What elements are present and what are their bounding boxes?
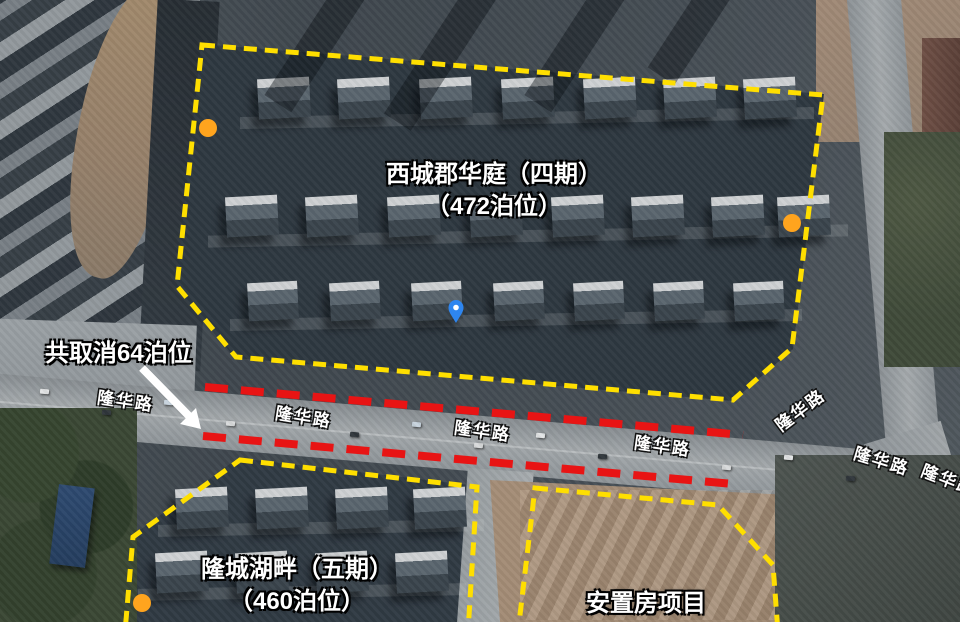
zone-label-xicheng: 西城郡华庭（四期） （472泊位） [386,159,602,223]
orange-dot-marker [133,594,151,612]
zone-label-longcheng: 隆城湖畔（五期） （460泊位） [201,554,393,618]
zone-label-anzhifang: 安置房项目 [586,588,706,620]
annotation-overlay [0,0,960,622]
zone-name: 西城郡华庭（四期） [386,159,602,191]
satellite-map: 西城郡华庭（四期） （472泊位） 隆城湖畔（五期） （460泊位） 安置房项目… [0,0,960,622]
orange-dot-marker [199,119,217,137]
zone-parking-count: （460泊位） [201,586,393,618]
zone-name: 隆城湖畔（五期） [201,554,393,586]
zone-name: 安置房项目 [586,588,706,620]
blue-location-pin [449,300,464,323]
zone-parking-count: （472泊位） [386,191,602,223]
cancelled-parking-callout: 共取消64泊位 [45,338,192,370]
orange-dot-marker [783,214,801,232]
